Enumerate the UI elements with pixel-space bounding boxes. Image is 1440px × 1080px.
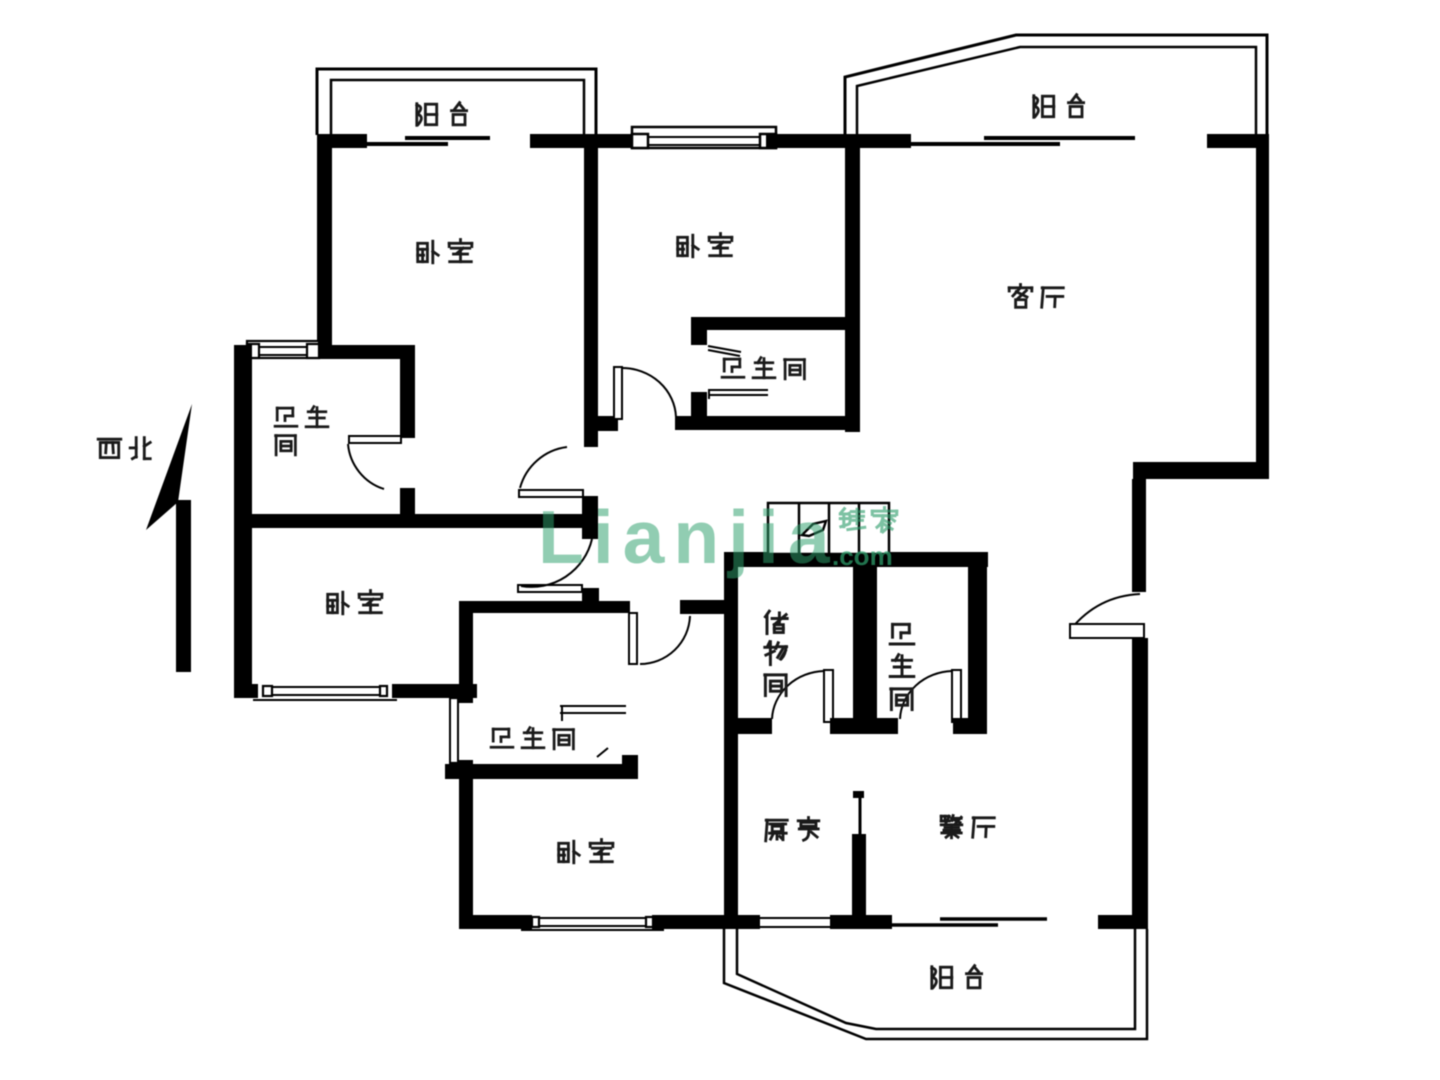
- svg-text:.com: .com: [832, 541, 893, 571]
- svg-text:Lianjia: Lianjia: [538, 495, 839, 579]
